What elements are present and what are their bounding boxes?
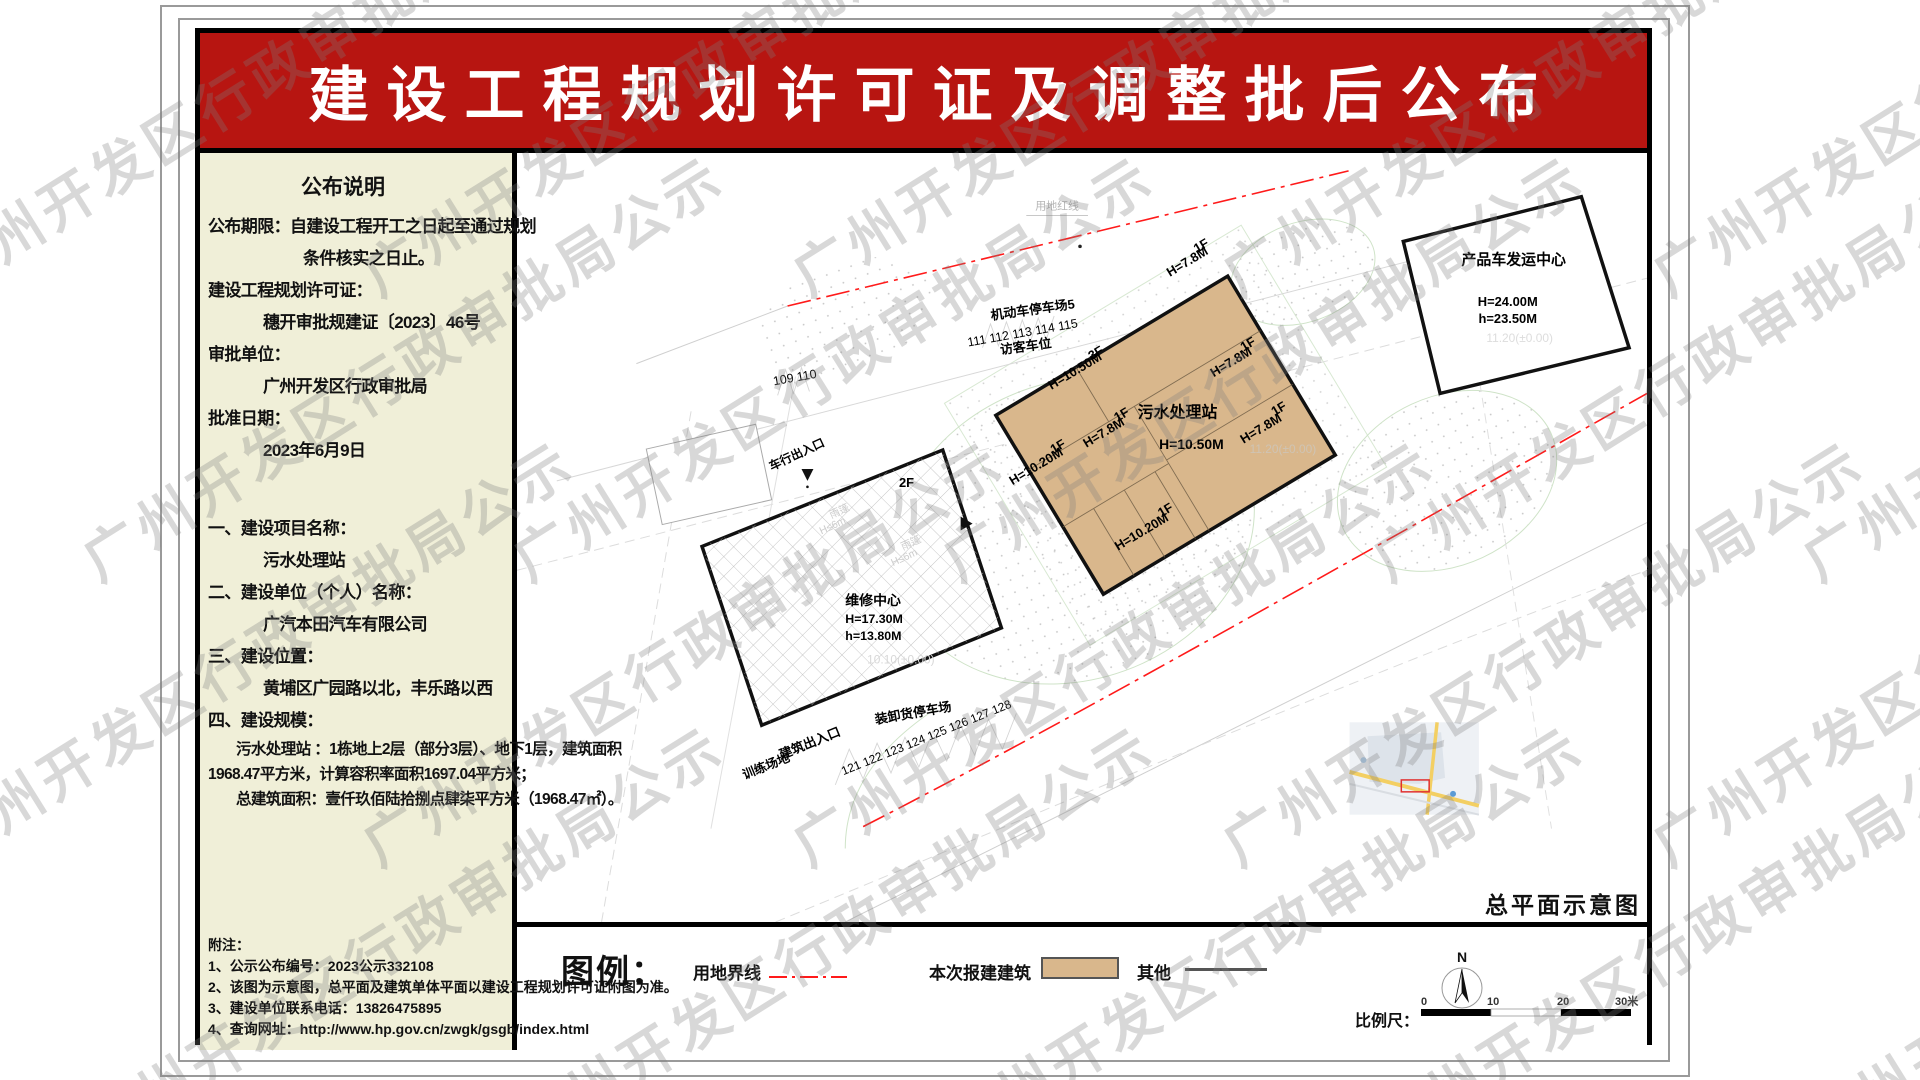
training-ground-label: 训练场地 bbox=[740, 749, 792, 782]
sc-height: H=24.00M bbox=[1478, 294, 1538, 309]
sc-name: 产品车发运中心 bbox=[1462, 250, 1566, 268]
watermark-text: 广州开发区行政审批局公示 bbox=[1785, 704, 1920, 1080]
loading-parking-label: 装卸货停车场 bbox=[873, 699, 953, 727]
legend-boundary-sample bbox=[769, 967, 847, 985]
location-minimap bbox=[1350, 722, 1479, 814]
legend-proposed-swatch bbox=[1041, 957, 1119, 979]
info-line: 1968.47平方米，计算容积率面积1697.04平方米； bbox=[208, 762, 508, 787]
note-line: 1、公示公布编号：2023公示332108 bbox=[208, 956, 678, 977]
info-line: 广汽本田汽车有限公司 bbox=[263, 609, 508, 641]
mb-elevation: 11.20(±0.00) bbox=[1250, 442, 1317, 456]
info-line: 批准日期： bbox=[208, 403, 508, 435]
sc-height-small: h=23.50M bbox=[1478, 311, 1537, 326]
info-line: 二、建设单位（个人）名称： bbox=[208, 577, 508, 609]
info-panel: 公布说明 公布期限：自建设工程开工之日起至通过规划 条件核实之日止。 建设工程规… bbox=[200, 153, 517, 1050]
legend-boundary-label: 用地界线 bbox=[693, 959, 761, 984]
notice-page: 建设工程规划许可证及调整批后公布 公布说明 公布期限：自建设工程开工之日起至通过… bbox=[0, 0, 1920, 1080]
repair-height: H=17.30M bbox=[845, 612, 903, 626]
notes-heading: 附注： bbox=[208, 935, 678, 956]
left-stall-numbers: 109 110 bbox=[772, 367, 818, 388]
legend-bar: 图例： 用地界线 本次报建建筑 其他 N bbox=[517, 922, 1647, 1050]
info-line: 广州开发区行政审批局 bbox=[263, 371, 508, 403]
info-line: 三、建设位置： bbox=[208, 641, 508, 673]
legend-other-label: 其他 bbox=[1137, 959, 1171, 984]
scale-tick: 20 bbox=[1557, 996, 1569, 1008]
info-line: 污水处理站 ：1栋地上2层（部分3层）、地下1层，建筑面积 bbox=[236, 737, 508, 762]
entrance-dot bbox=[806, 486, 809, 489]
plan-caption: 总平面示意图 bbox=[1485, 886, 1641, 920]
info-line: 建设工程规划许可证： bbox=[208, 275, 508, 307]
info-heading: 公布说明 bbox=[208, 171, 478, 201]
title-banner: 建设工程规划许可证及调整批后公布 bbox=[200, 33, 1647, 153]
watermark-text: 广州开发区行政审批局公示 bbox=[1785, 134, 1920, 597]
info-line: 2023年6月9日 bbox=[263, 435, 508, 467]
note-line: 4、查询网址：http://www.hp.gov.cn/zwgk/gsgb/in… bbox=[208, 1019, 678, 1040]
scale-label: 比例尺： bbox=[1355, 1007, 1419, 1031]
notice-document: 建设工程规划许可证及调整批后公布 公布说明 公布期限：自建设工程开工之日起至通过… bbox=[195, 28, 1652, 1045]
repair-elevation: 10.10(±0.00) bbox=[867, 653, 935, 667]
info-line: 总建筑面积：壹仟玖佰陆拾捌点肆柒平方米（1968.47㎡）。 bbox=[236, 787, 508, 812]
site-plan: 用地红线 bbox=[517, 153, 1647, 922]
legend-proposed-label: 本次报建建筑 bbox=[929, 959, 1031, 984]
entrance-triangle-icon bbox=[801, 469, 813, 481]
info-line: 污水处理站 bbox=[263, 545, 508, 577]
repair-name: 维修中心 bbox=[845, 592, 901, 608]
site-plan-drawing: 用地红线 bbox=[517, 153, 1647, 922]
sc-elevation: 11.20(±0.00) bbox=[1486, 331, 1553, 345]
notes-block: 附注： 1、公示公布编号：2023公示332108 2、该图为示意图，总平面及建… bbox=[208, 935, 678, 1040]
spacer bbox=[208, 467, 508, 513]
scale-tick: 0 bbox=[1421, 996, 1427, 1008]
page-title: 建设工程规划许可证及调整批后公布 bbox=[309, 47, 1557, 134]
note-line: 2、该图为示意图，总平面及建筑单体平面以建设工程规划许可证附图为准。 bbox=[208, 977, 678, 998]
info-line: 条件核实之日止。 bbox=[303, 243, 508, 275]
boundary-label: 用地红线 bbox=[1035, 199, 1079, 213]
info-line: 四、建设规模： bbox=[208, 705, 508, 737]
repair-floor-label: 2F bbox=[899, 475, 914, 490]
note-line: 3、建设单位联系电话：13826475895 bbox=[208, 998, 678, 1019]
scale-tick: 10 bbox=[1487, 996, 1499, 1008]
repair-center-building bbox=[646, 424, 1001, 725]
info-line: 穗开审批规建证〔2023〕46号 bbox=[263, 307, 508, 339]
mb-name: 污水处理站 bbox=[1138, 402, 1218, 421]
scale-bar: 0 10 20 30米 bbox=[1419, 995, 1641, 1030]
repair-height-small: h=13.80M bbox=[845, 629, 901, 643]
info-line: 黄埔区广园路以北，丰乐路以西 bbox=[263, 673, 508, 705]
info-line: 一、建设项目名称： bbox=[208, 513, 508, 545]
site-plan-column: 用地红线 bbox=[517, 153, 1647, 1050]
north-label: N bbox=[1438, 949, 1486, 965]
scale-tick: 30米 bbox=[1615, 995, 1639, 1008]
mb-center-height: H=10.50M bbox=[1159, 436, 1224, 452]
info-line: 审批单位： bbox=[208, 339, 508, 371]
document-body: 公布说明 公布期限：自建设工程开工之日起至通过规划 条件核实之日止。 建设工程规… bbox=[200, 153, 1647, 1050]
legend-other-sample bbox=[1185, 968, 1267, 971]
vehicle-entrance-label: 车行出入口 bbox=[767, 435, 827, 473]
info-line: 公布期限：自建设工程开工之日起至通过规划 bbox=[208, 211, 508, 243]
